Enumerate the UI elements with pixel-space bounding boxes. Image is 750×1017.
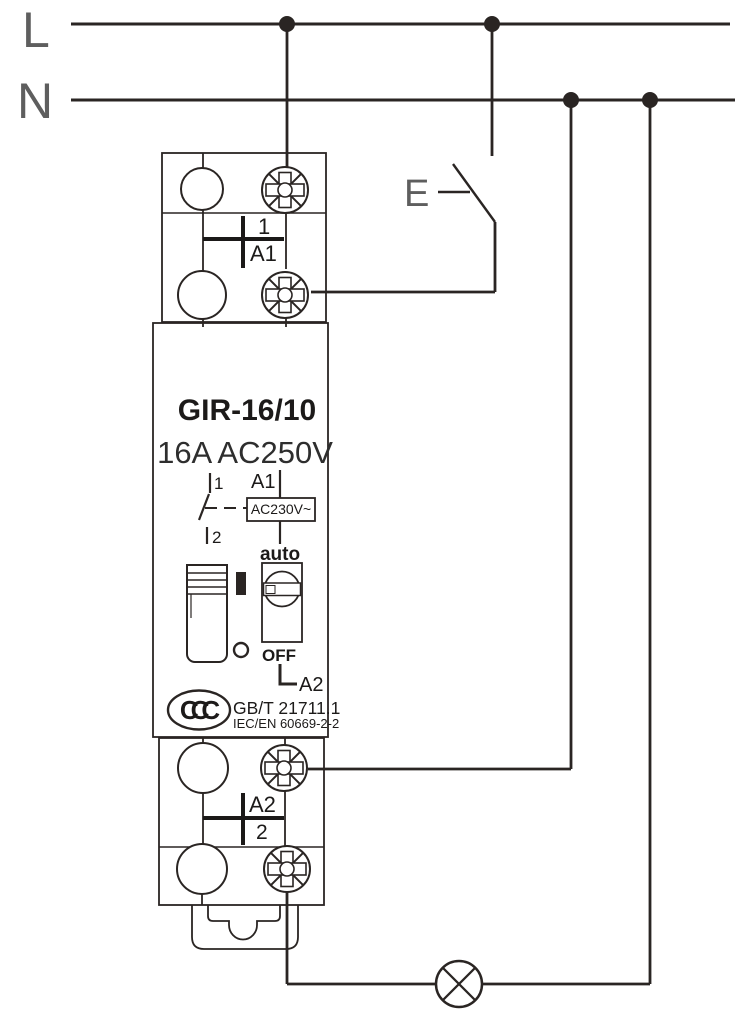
rating-label: 16A AC250V [157,435,333,470]
mode-selector [262,563,302,642]
screw-terminal-a2 [261,745,307,791]
indicator-window [236,572,246,595]
din-clip-inner [208,905,280,940]
coil-return-label: A2 [299,674,323,696]
junction-dot [642,92,658,108]
bottom-terminal-coil-return-label: A2 [249,792,276,817]
clamp-hole [181,168,223,210]
contact-out-label: 2 [212,528,221,547]
line-rail-label: L [22,2,50,58]
coil-rating-label: AC230V~ [251,501,311,517]
pushbutton-label: E [404,173,429,215]
manual-lever [187,565,227,662]
bottom-terminal-contact-label: 2 [256,821,268,844]
contact-in-label: 1 [214,474,223,493]
screw-terminal-1 [262,167,308,213]
auto-label: auto [260,544,300,565]
off-label: OFF [262,646,296,665]
diagram-canvas: L N [0,0,750,1017]
top-terminal-contact-label: 1 [258,214,270,239]
lamp-icon [436,961,482,1007]
iec-standard-label: IEC/EN 60669-2-2 [233,716,339,731]
coil-terminal-label: A1 [251,471,275,493]
neutral-rail-label: N [17,73,53,129]
wiring-diagram: L N [0,0,750,1017]
clamp-hole [177,844,227,894]
screw-terminal-a1 [262,272,308,318]
model-label: GIR-16/10 [178,394,316,427]
clamp-hole [178,271,226,319]
junction-dot [563,92,579,108]
gb-standard-label: GB/T 21711.1 [233,698,340,718]
junction-dot [279,16,295,32]
screw-terminal-2 [264,846,310,892]
indicator-dot [234,643,248,657]
clamp-hole [178,743,228,793]
junction-dot [484,16,500,32]
top-terminal-coil-label: A1 [250,241,277,266]
